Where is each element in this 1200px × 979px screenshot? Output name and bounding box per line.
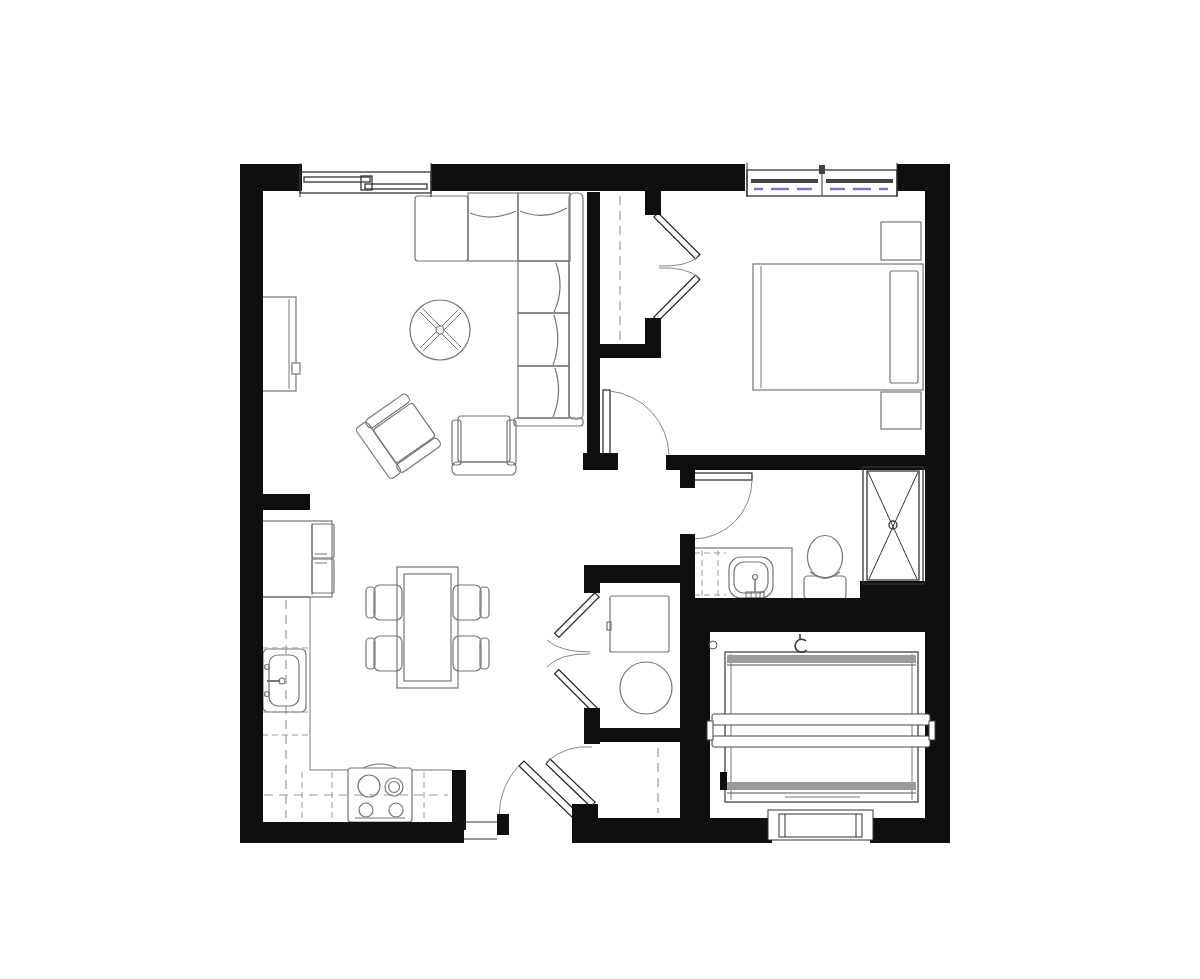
queen-bed [753, 264, 923, 390]
window-sash-bar [826, 179, 893, 183]
nightstand-north [881, 222, 921, 260]
door-swing-arcs-part [659, 268, 698, 277]
rail-end-cap-west [707, 721, 713, 740]
deck-rails [707, 714, 935, 747]
deck-structure-part [725, 652, 918, 802]
sectional-sofa-part [520, 208, 567, 215]
walls-part [240, 494, 310, 510]
floor-plan-canvas [0, 0, 1200, 979]
kitchen-counter [262, 597, 452, 770]
walls-part [592, 565, 693, 583]
sectional-sofa-part [553, 368, 559, 417]
sectional-sofa-part [518, 313, 569, 366]
walls-part [240, 822, 464, 843]
deck-latch-tick [720, 772, 727, 790]
window-sash-bar [751, 179, 818, 183]
armchair [452, 416, 516, 475]
kitchen-sink [263, 649, 306, 712]
sectional-sofa-part [468, 193, 518, 261]
armchair-part [452, 420, 461, 465]
dining-table [397, 567, 458, 688]
deck-structure [707, 652, 935, 802]
range-cooktop [348, 764, 412, 822]
dining-chairs-part [453, 585, 481, 620]
walls-part [666, 455, 925, 470]
deck-bottom-band [727, 782, 916, 790]
deck-rails-part [712, 714, 930, 725]
walls-part [497, 814, 509, 835]
queen-bed-part [890, 271, 918, 383]
living-room-window [300, 163, 431, 197]
round-coffee-table [410, 300, 470, 360]
walls-part [587, 344, 661, 358]
armchair-part [452, 462, 516, 475]
rail-end-cap-east [929, 721, 935, 740]
laundry-closet-doors [555, 593, 600, 714]
nightstand-south [881, 392, 921, 429]
bathroom-door-leaf [692, 473, 752, 480]
dining-chairs-part [453, 636, 481, 671]
floor-plan-drawing [0, 0, 1200, 979]
dining-chairs-part [374, 585, 402, 620]
sectional-sofa-part [569, 193, 583, 419]
sectional-sofa-part [518, 261, 569, 313]
dining-chairs [366, 585, 489, 671]
armchair-part [458, 416, 510, 462]
entry-door-leaf [519, 761, 580, 820]
refrigerator [262, 521, 334, 597]
dryer [620, 662, 672, 714]
entry-threshold [464, 822, 497, 839]
walls-part [452, 770, 466, 830]
bedroom-door-swing-arc [610, 391, 669, 455]
refrigerator-part [312, 524, 334, 558]
entry-closet-door-swing-arc [548, 747, 592, 761]
dining-table-part [404, 574, 451, 681]
bedroom-door-leaf [603, 390, 610, 457]
accent-chair-angled-part [373, 402, 436, 463]
laundry-closet-doors-part [555, 593, 600, 638]
bathroom-vanity [693, 548, 792, 600]
walls-part [693, 598, 925, 632]
exterior-step [768, 810, 873, 840]
sectional-sofa-part [415, 196, 468, 261]
bedroom-window-part [819, 165, 825, 174]
bedroom-closet-doors [654, 213, 700, 321]
bedroom-window [747, 163, 897, 197]
door-swing-arcs-part [659, 257, 698, 266]
bathroom-vanity-part [693, 548, 792, 600]
deck-top-band [727, 655, 916, 663]
sectional-sofa-part [553, 315, 558, 365]
patio-room [707, 634, 935, 840]
walls-part [584, 565, 600, 593]
shower-part [889, 521, 897, 529]
accent-chair-angled-part [395, 437, 442, 474]
armchair-part [507, 420, 516, 465]
sectional-sofa-part [518, 193, 570, 261]
walls-part [870, 818, 950, 843]
dining-chairs-part [374, 636, 402, 671]
refrigerator-part [312, 559, 334, 593]
bedroom-closet-doors-part [654, 213, 700, 259]
hose-bib-glyph [795, 634, 806, 652]
round-coffee-table-part [436, 326, 444, 334]
accent-chair-angled [354, 393, 441, 481]
walls-part [587, 192, 600, 470]
queen-bed-part [753, 264, 923, 390]
shower-part [868, 472, 917, 579]
sectional-sofa-part [470, 211, 516, 217]
media-console [262, 297, 300, 391]
bathroom-door-swing-arc [693, 480, 752, 539]
toilet-part [804, 576, 846, 599]
entry-door-swing-arc [499, 763, 521, 817]
living-room-window-part [304, 177, 370, 182]
walls-part [645, 318, 661, 346]
walls-part [592, 728, 680, 742]
sectional-sofa-part [518, 366, 569, 418]
toilet [804, 536, 846, 600]
accent-chair-angled-part [364, 393, 411, 430]
deck-rails-part [712, 736, 930, 747]
shower-part [869, 472, 918, 579]
bedroom-closet-doors-part [654, 275, 700, 321]
door-swing-arcs-part [547, 654, 590, 667]
door-swing-arcs-part [547, 640, 590, 652]
walls-part [431, 164, 745, 191]
dining-table-part [397, 567, 458, 688]
post-circle-marker [709, 641, 717, 649]
hose-bib-glyph-part [795, 639, 806, 652]
washer-part [607, 622, 611, 630]
toilet-part [808, 536, 843, 579]
bathroom-vanity-part [734, 562, 768, 593]
living-room-window-part [365, 184, 427, 189]
media-console-part [292, 363, 300, 374]
washer-part [610, 596, 669, 652]
accent-chair-angled-part [355, 421, 402, 480]
sectional-sofa-part [554, 263, 560, 312]
dash-layer [262, 196, 726, 820]
bathroom-vanity-part [753, 575, 758, 580]
sectional-sofa [415, 193, 583, 426]
washer [607, 596, 669, 652]
walls-part [583, 453, 618, 470]
shower [863, 467, 923, 584]
media-console-part [262, 297, 296, 391]
laundry-closet-doors-part [555, 670, 600, 715]
walls-part [645, 190, 661, 215]
